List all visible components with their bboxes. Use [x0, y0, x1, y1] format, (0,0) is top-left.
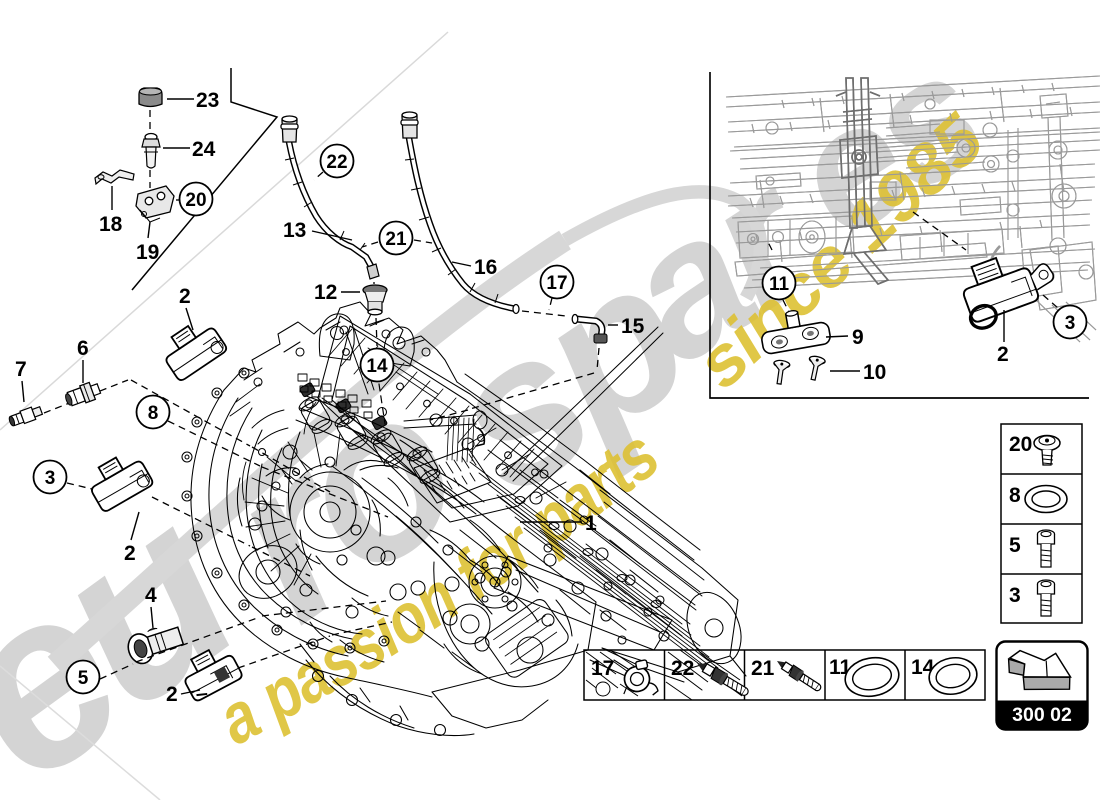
svg-text:2: 2 [166, 683, 178, 706]
svg-text:2: 2 [179, 285, 191, 308]
svg-text:14: 14 [366, 356, 388, 377]
svg-text:20: 20 [185, 190, 206, 211]
svg-text:23: 23 [196, 89, 219, 112]
svg-text:2: 2 [124, 542, 136, 565]
svg-text:22: 22 [671, 657, 694, 680]
svg-text:6: 6 [77, 337, 89, 360]
svg-text:3: 3 [1009, 584, 1021, 607]
svg-text:5: 5 [1009, 534, 1021, 557]
svg-text:1: 1 [585, 512, 597, 535]
svg-text:4: 4 [145, 584, 157, 607]
svg-text:3: 3 [1065, 313, 1076, 334]
svg-text:8: 8 [1009, 484, 1021, 507]
svg-text:13: 13 [283, 219, 306, 242]
svg-text:300 02: 300 02 [1012, 704, 1072, 726]
svg-text:5: 5 [78, 668, 89, 689]
svg-text:18: 18 [99, 213, 123, 236]
svg-text:22: 22 [326, 152, 347, 173]
svg-text:2: 2 [997, 343, 1009, 366]
svg-text:9: 9 [852, 326, 864, 349]
svg-text:7: 7 [15, 358, 27, 381]
svg-text:12: 12 [314, 281, 337, 304]
svg-text:17: 17 [546, 273, 567, 294]
svg-text:16: 16 [474, 256, 497, 279]
svg-text:17: 17 [591, 657, 614, 680]
svg-text:10: 10 [863, 361, 886, 384]
svg-text:21: 21 [385, 229, 407, 250]
svg-text:3: 3 [45, 468, 56, 489]
svg-text:8: 8 [148, 403, 159, 424]
svg-text:20: 20 [1009, 433, 1032, 456]
svg-text:24: 24 [192, 138, 216, 161]
svg-text:11: 11 [769, 274, 790, 295]
svg-text:19: 19 [136, 241, 159, 264]
svg-text:15: 15 [621, 315, 645, 338]
svg-text:21: 21 [751, 657, 775, 680]
